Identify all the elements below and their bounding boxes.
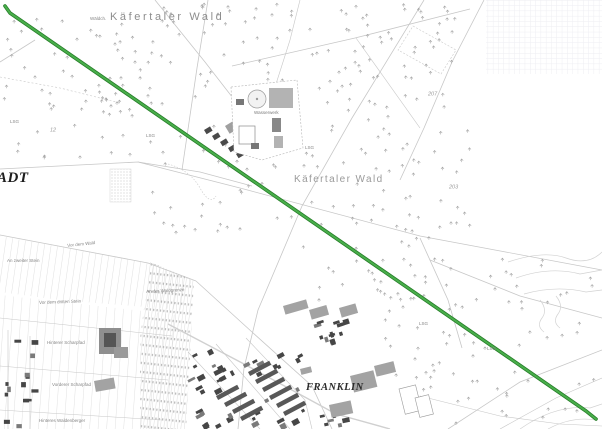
- field-name-an-zweiter-stein: An zweiter Stein: [7, 258, 40, 263]
- waterworks-label: Wasserwerk: [254, 110, 279, 115]
- parcel-number-12: 12: [50, 127, 56, 133]
- small-wood-label: Wäldch.: [90, 16, 106, 21]
- parcel-number-203: 203: [449, 184, 458, 190]
- field-name-hinteres-waldenberger: Hinteres Waldenberger: [39, 418, 85, 423]
- lsg-marker: LSG: [487, 346, 496, 351]
- district-label-franklin: FRANKLIN: [306, 382, 364, 393]
- forest-title-top: Käfertaler Wald: [110, 11, 224, 23]
- lsg-marker: LSG: [419, 321, 428, 326]
- lsg-marker: LSG: [146, 133, 155, 138]
- map-canvas[interactable]: [0, 0, 602, 429]
- forest-label-mid: Käfertaler Wald: [294, 174, 384, 185]
- lsg-marker: LSG: [305, 145, 314, 150]
- waterworks-compound: [231, 80, 303, 160]
- parcel-number-207: 207: [428, 91, 437, 97]
- field-name-vorderer-scharpfad: Vorderer Scharpfad: [52, 382, 91, 387]
- lsg-marker: LSG: [10, 119, 19, 124]
- survey-grid: [486, 0, 602, 74]
- contour-lines: [508, 252, 602, 429]
- map-viewport[interactable]: Käfertaler Wald Käfertaler Wald ADT FRAN…: [0, 0, 602, 429]
- field-name-hinterer-scharpfad: Hinterer Scharpfad: [47, 340, 85, 345]
- district-label-partial: ADT: [0, 170, 29, 187]
